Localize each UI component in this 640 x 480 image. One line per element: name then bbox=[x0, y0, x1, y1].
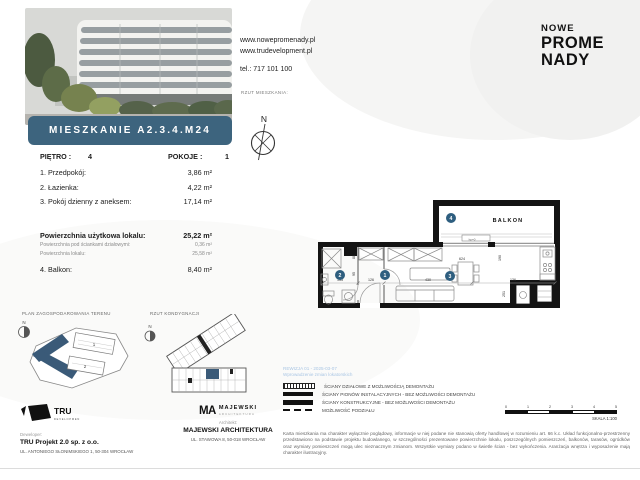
usable-area-row: Powierzchnia użytkowa lokalu: 25,22 m² bbox=[40, 231, 212, 240]
site-plan-label: PLAN ZAGOSPODAROWANIA TERENU bbox=[22, 311, 111, 316]
room-area: 17,14 m² bbox=[184, 197, 212, 206]
brand-logo-line2: PROME bbox=[541, 35, 604, 52]
floor-label: PIĘTRO : bbox=[40, 152, 71, 161]
balcony-value: 8,40 m² bbox=[188, 265, 212, 274]
wall-legend: ŚCIANY DZIAŁOWE Z MOŻLIWOŚCIĄ DEMONTAŻU … bbox=[283, 382, 475, 414]
svg-text:TRU: TRU bbox=[54, 406, 71, 416]
partition-area-label: Powierzchnia pod ściankami działowymi: bbox=[40, 242, 130, 248]
svg-text:95: 95 bbox=[352, 272, 356, 276]
room-name: 2. Łazienka: bbox=[40, 183, 79, 192]
developer-block: TRU DEVELOPMENT Deweloper: TRU Projekt 2… bbox=[20, 403, 133, 454]
legend-label: ŚCIANY PIONÓW INSTALACYJNYCH - BEZ MOŻLI… bbox=[322, 392, 475, 397]
footer-divider bbox=[0, 468, 640, 469]
developer-address: UL. ANTONIEGO SŁONIMSKIEGO 1, 50-304 WRO… bbox=[20, 449, 133, 454]
balcony-window bbox=[443, 242, 554, 247]
svg-text:DEVELOPMENT: DEVELOPMENT bbox=[54, 417, 80, 421]
building-render-photo bbox=[25, 8, 232, 125]
building-render-graphic bbox=[25, 8, 232, 125]
local-area-label: Powierzchnia lokalu: bbox=[40, 251, 86, 257]
svg-text:N: N bbox=[22, 320, 25, 325]
svg-text:136: 136 bbox=[510, 278, 516, 282]
legend-label: ŚCIANY KONSTRUKCYJNE - BEZ MOŻLIWOŚCI DE… bbox=[322, 400, 455, 405]
scale-tick: 0 bbox=[505, 405, 507, 409]
legend-label: ŚCIANY DZIAŁOWE Z MOŻLIWOŚCIĄ DEMONTAŻU bbox=[324, 384, 434, 389]
room-name: 3. Pokój dzienny z aneksem: bbox=[40, 197, 132, 206]
brand-logo-line1: NOWE bbox=[541, 24, 604, 34]
usable-area-value: 25,22 m² bbox=[183, 231, 212, 240]
storey-highlight-unit bbox=[206, 369, 219, 379]
svg-text:2: 2 bbox=[339, 273, 342, 279]
svg-text:624: 624 bbox=[459, 257, 465, 261]
majewski-logo-ma: MA bbox=[199, 405, 216, 417]
legend-swatch-solid-thick bbox=[283, 400, 313, 405]
majewski-logo-sub: ARCHITEKTURA bbox=[219, 413, 257, 416]
legend-swatch-solid-thin bbox=[283, 392, 313, 395]
north-compass-icon: N bbox=[245, 110, 281, 166]
svg-text:88: 88 bbox=[352, 255, 356, 259]
room-name: 1. Przedpokój: bbox=[40, 168, 86, 177]
architect-block: MA MAJEWSKI ARCHITEKTURA Architekt: MAJE… bbox=[180, 405, 276, 442]
scale-tick: 1 bbox=[527, 405, 529, 409]
floor-rooms-row: PIĘTRO : 4 POKOJE : 1 bbox=[40, 152, 232, 162]
balcony-area-row: 4. Balkon: 8,40 m² bbox=[40, 265, 212, 274]
svg-text:190: 190 bbox=[498, 255, 502, 261]
contact-block: www.nowepromenady.pl www.trudevelopment.… bbox=[240, 36, 315, 76]
rooms-label: POKOJE : bbox=[168, 152, 202, 161]
partition-area-value: 0,36 m² bbox=[195, 242, 212, 248]
scale-tick: 2 bbox=[549, 405, 551, 409]
site-north-arrow-icon: N bbox=[19, 320, 30, 338]
site-plan-graphic: N 1 2 bbox=[16, 318, 136, 398]
room-row: 1. Przedpokój: 3,86 m² bbox=[40, 168, 212, 177]
website-link-2: www.trudevelopment.pl bbox=[240, 47, 315, 58]
website-link-1: www.nowepromenady.pl bbox=[240, 36, 315, 47]
rooms-value: 1 bbox=[225, 152, 229, 161]
disclaimer-text: Karta mieszkania ma charakter wyłącznie … bbox=[283, 431, 630, 456]
balcony-label: 4. Balkon: bbox=[40, 265, 72, 274]
svg-text:251: 251 bbox=[502, 291, 506, 297]
brand-logo-line3: NADY bbox=[541, 52, 604, 69]
legend-swatch-dashed bbox=[283, 409, 313, 412]
scale-bar-segments bbox=[505, 410, 617, 414]
legend-row: ŚCIANY PIONÓW INSTALACYJNYCH - BEZ MOŻLI… bbox=[283, 390, 475, 398]
room-area: 4,22 m² bbox=[188, 183, 212, 192]
scale-bar: 0 1 2 3 4 5 SKALA 1:100 bbox=[505, 405, 627, 421]
partition-area-row: Powierzchnia pod ściankami działowymi: 0… bbox=[40, 242, 212, 248]
revision-note: REWIZJA 01 - 2025-03-07 Wprowadzenie zmi… bbox=[283, 366, 352, 379]
svg-text:1: 1 bbox=[384, 273, 387, 279]
legend-swatch-hatched bbox=[283, 383, 315, 389]
scale-tick: 5 bbox=[615, 405, 617, 409]
architect-address: UL. STAWOWA 8, 50-018 WROCŁAW bbox=[180, 437, 276, 442]
tru-logo-icon: TRU DEVELOPMENT bbox=[20, 403, 80, 424]
room-list: 1. Przedpokój: 3,86 m² 2. Łazienka: 4,22… bbox=[40, 168, 212, 212]
svg-text:N: N bbox=[148, 324, 151, 329]
svg-text:3: 3 bbox=[449, 274, 452, 280]
local-area-value: 25,58 m² bbox=[192, 251, 212, 257]
room-area: 3,86 m² bbox=[188, 168, 212, 177]
scale-tick: 3 bbox=[571, 405, 573, 409]
scale-label: SKALA 1:100 bbox=[505, 416, 617, 421]
svg-text:126: 126 bbox=[368, 278, 374, 282]
scale-tick: 4 bbox=[593, 405, 595, 409]
legend-row: MOŻLIWOŚĆ PODZIAŁU bbox=[283, 406, 475, 414]
storey-plan-graphic: N bbox=[142, 314, 252, 400]
area-summary: Powierzchnia użytkowa lokalu: 25,22 m² P… bbox=[40, 231, 212, 257]
legend-row: ŚCIANY DZIAŁOWE Z MOŻLIWOŚCIĄ DEMONTAŻU bbox=[283, 382, 475, 390]
svg-text:hp=0: hp=0 bbox=[469, 238, 476, 242]
architect-name: MAJEWSKI ARCHITEKTURA bbox=[180, 427, 276, 434]
developer-name: TRU Projekt 2.0 sp. z o.o. bbox=[20, 439, 133, 446]
phone-number: tel.: 717 101 100 bbox=[240, 65, 315, 76]
apartment-floor-plan: BALKON bbox=[312, 190, 562, 320]
room-row: 2. Łazienka: 4,22 m² bbox=[40, 183, 212, 192]
svg-text:4: 4 bbox=[450, 216, 453, 222]
usable-area-label: Powierzchnia użytkowa lokalu: bbox=[40, 231, 145, 240]
architect-role-label: Architekt: bbox=[180, 420, 276, 425]
brand-logo: NOWE PROME NADY bbox=[541, 24, 604, 69]
local-area-row: Powierzchnia lokalu: 25,58 m² bbox=[40, 251, 212, 257]
room-row: 3. Pokój dzienny z aneksem: 17,14 m² bbox=[40, 197, 212, 206]
majewski-logo-icon: MA MAJEWSKI ARCHITEKTURA bbox=[180, 405, 276, 417]
apartment-title: MIESZKANIE A2.3.4.M24 bbox=[49, 125, 211, 136]
apartment-title-bar: MIESZKANIE A2.3.4.M24 bbox=[28, 116, 232, 145]
svg-text:BALKON: BALKON bbox=[493, 218, 524, 224]
legend-label: MOŻLIWOŚĆ PODZIAŁU bbox=[322, 408, 375, 413]
svg-text:430: 430 bbox=[425, 278, 431, 282]
storey-north-arrow-icon: N bbox=[145, 324, 155, 341]
developer-role-label: Deweloper: bbox=[20, 432, 133, 437]
legend-row: ŚCIANY KONSTRUKCYJNE - BEZ MOŻLIWOŚCI DE… bbox=[283, 398, 475, 406]
scale-ticks: 0 1 2 3 4 5 bbox=[505, 405, 617, 409]
plan-section-label: RZUT MIESZKANIA: bbox=[241, 90, 288, 95]
svg-text:N: N bbox=[261, 114, 267, 124]
floor-value: 4 bbox=[88, 152, 92, 161]
revision-line2: Wprowadzenie zmian lokatorskich bbox=[283, 372, 352, 378]
